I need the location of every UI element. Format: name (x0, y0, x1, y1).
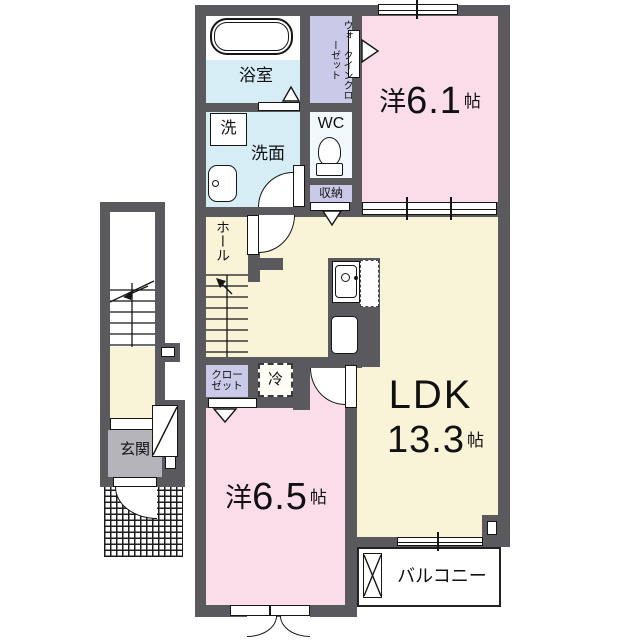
room2-window-arc-right (280, 616, 310, 637)
washer-label: 洗 (210, 113, 247, 146)
room1-top-window (378, 4, 458, 15)
room1-ldk-window (362, 202, 497, 215)
entrance-door-bar (113, 477, 157, 487)
balcony-hatch-box-icon (363, 553, 382, 598)
washroom-door-leaf (293, 165, 305, 207)
corner-window (487, 521, 497, 535)
floorplan: 浴室 ウォークインクローゼット 洗 洗面 WC 収納 ホール 洋6.1帖 LDK… (0, 0, 621, 640)
western-room-1-label: 洋6.1帖 (367, 76, 493, 128)
ldk-unit: 帖 (467, 432, 484, 450)
room2-door-leaf (345, 365, 357, 408)
window-tick (406, 197, 408, 220)
wall-hall-stub (260, 258, 283, 270)
wall-ldk-room2 (345, 408, 357, 617)
landing (110, 347, 155, 418)
washroom-label: 洗面 (244, 142, 292, 166)
closet-line2: ゼット (211, 381, 243, 392)
window-tick (450, 197, 452, 220)
balcony-label: バルコニー (388, 563, 496, 589)
stairwell (110, 212, 155, 347)
bathroom-door-bar (258, 102, 300, 111)
room2-window-arc-left (247, 616, 277, 637)
hall-label: ホール (215, 220, 233, 276)
room2-size: 6.5 (252, 478, 308, 518)
ldk-size-label: 13.3帖 (373, 420, 498, 462)
room1-unit: 帖 (464, 93, 481, 111)
entrance-inner-door (110, 418, 157, 430)
entrance-label: 玄関 (110, 438, 160, 462)
wc-label: WC (311, 112, 351, 136)
ldk-label: LDK (383, 373, 478, 417)
room2-unit: 帖 (310, 489, 327, 507)
ldk-size: 13.3 (387, 421, 465, 461)
closet-label: クロー ゼット (206, 365, 248, 397)
room1-prefix: 洋 (379, 88, 406, 116)
ldk-balcony-window (397, 537, 483, 546)
window-tick (437, 532, 439, 551)
storage-door-bar (310, 202, 350, 211)
toilet-bowl-icon (318, 137, 341, 166)
wall-room2-top (257, 397, 307, 408)
storage-label: 収納 (310, 185, 352, 202)
bathroom-label: 浴室 (224, 63, 288, 89)
toilet-tank-icon (316, 163, 343, 176)
closet-door-bar (208, 398, 257, 408)
hall-door-leaf (247, 215, 259, 255)
annex-bump-window (161, 347, 175, 357)
western-room-2-label: 洋6.5帖 (210, 472, 342, 524)
window-tick (416, 0, 418, 19)
refrigerator-label: 冷 (258, 363, 293, 397)
kitchen-counter-edge (360, 260, 379, 307)
entrance-notch (165, 456, 176, 469)
washbasin-drain (212, 180, 219, 187)
stove-icon (331, 316, 358, 354)
room1-size: 6.1 (406, 82, 462, 122)
window-divider (269, 605, 271, 616)
bathtub-inner (214, 22, 289, 51)
room2-prefix: 洋 (225, 484, 252, 512)
kitchen-faucet-icon (341, 273, 350, 282)
walk-in-closet-label: ウォークインクローゼット (312, 17, 352, 103)
